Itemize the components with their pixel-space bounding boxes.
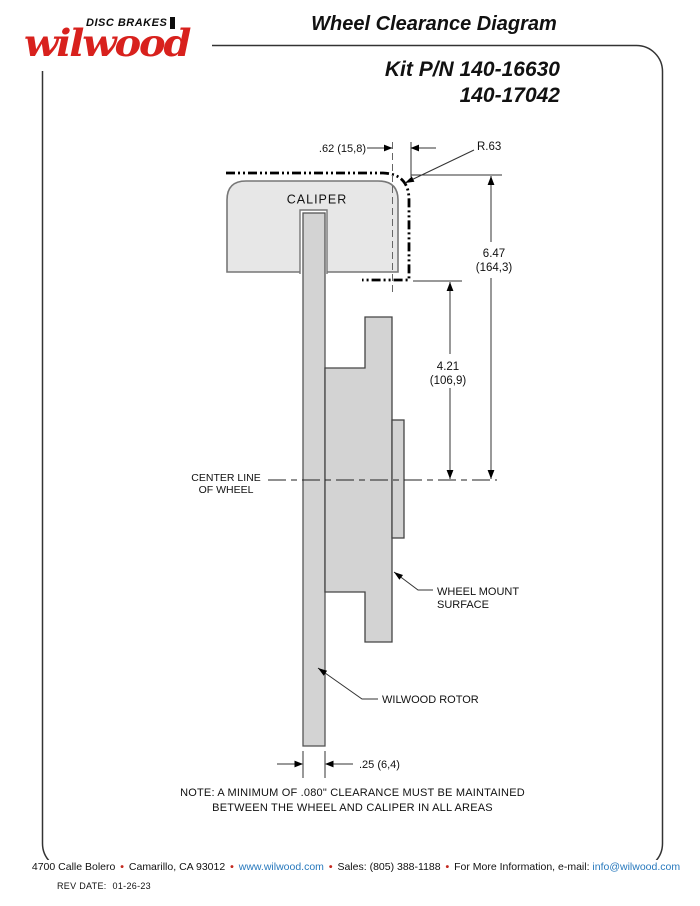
bullet-icon: • [228,861,236,873]
clearance-diagram: .62 (15,8) R.63 6.47 (164,3) 4.21 (106 [0,0,700,906]
arrow-down-icon [488,470,495,479]
caliper-label: CALIPER [287,193,348,207]
dim-mount-in: 4.21 [437,361,459,373]
arrow-left-icon [325,761,334,768]
radius-callout: R.63 [405,141,501,183]
wheel-mount-callout: WHEEL MOUNT SURFACE [394,572,519,611]
radius-label: R.63 [477,141,501,153]
rotor-callout: WILWOOD ROTOR [318,668,479,706]
arrow-icon [394,572,403,580]
dim-mount-mm: (106,9) [430,375,467,387]
bullet-icon: • [118,861,126,873]
wheel-mount-label-2: SURFACE [437,599,489,611]
dim-caliper-height: 6.47 (164,3) [411,175,512,479]
note-line2: BETWEEN THE WHEEL AND CALIPER IN ALL ARE… [100,801,605,816]
dim-rotor-label: .25 (6,4) [359,759,400,771]
footer-address: 4700 Calle Bolero [32,861,115,873]
kit-pn-line1: Kit P/N 140-16630 [308,57,560,83]
email-link[interactable]: info@wilwood.com [592,861,680,873]
note-line1: NOTE: A MINIMUM OF .080" CLEARANCE MUST … [100,786,605,801]
dim-overhang-label: .62 (15,8) [319,143,366,155]
arrow-right-icon [295,761,304,768]
arrow-up-icon [488,176,495,185]
footer-info-label: For More Information, e-mail: [454,861,589,873]
page-title: Wheel Clearance Diagram [234,13,634,36]
kit-pn-line2: 140-17042 [308,83,560,109]
arrow-right-icon [384,145,393,152]
footer-city: Camarillo, CA 93012 [129,861,225,873]
centerline-label-2: OF WHEEL [199,484,254,496]
dim-mount-to-center: 4.21 (106,9) [413,281,466,479]
wilwood-logo: DISC BRAKES wilwood [20,15,212,71]
clearance-note: NOTE: A MINIMUM OF .080" CLEARANCE MUST … [100,786,605,816]
website-link[interactable]: www.wilwood.com [239,861,324,873]
bullet-icon: • [327,861,335,873]
footer-contact: 4700 Calle Bolero • Camarillo, CA 93012 … [24,860,688,874]
arrow-left-icon [411,145,420,152]
wheel-clearance-sheet: .62 (15,8) R.63 6.47 (164,3) 4.21 (106 [0,0,700,906]
dim-rotor-width: .25 (6,4) [277,751,400,778]
bullet-icon: • [444,861,452,873]
kit-part-numbers: Kit P/N 140-16630 140-17042 [308,57,560,109]
centerline-label-1: CENTER LINE [191,472,260,484]
rev-date-label: REV DATE: [57,881,113,891]
dim-height-mm: (164,3) [476,262,513,274]
arrow-icon [405,176,414,183]
hat-pilot-step [392,420,404,538]
wheel-mount-label-1: WHEEL MOUNT [437,586,519,598]
wilwood-wordmark: wilwood [24,21,189,65]
dim-height-in: 6.47 [483,248,505,260]
rev-date: REV DATE:01-26-23 [57,881,157,891]
rev-date-value: 01-26-23 [113,881,157,891]
rotor-label: WILWOOD ROTOR [382,694,479,706]
arrow-up-icon [447,282,454,291]
arrow-down-icon [447,470,454,479]
footer-sales: Sales: (805) 388-1188 [337,861,440,873]
